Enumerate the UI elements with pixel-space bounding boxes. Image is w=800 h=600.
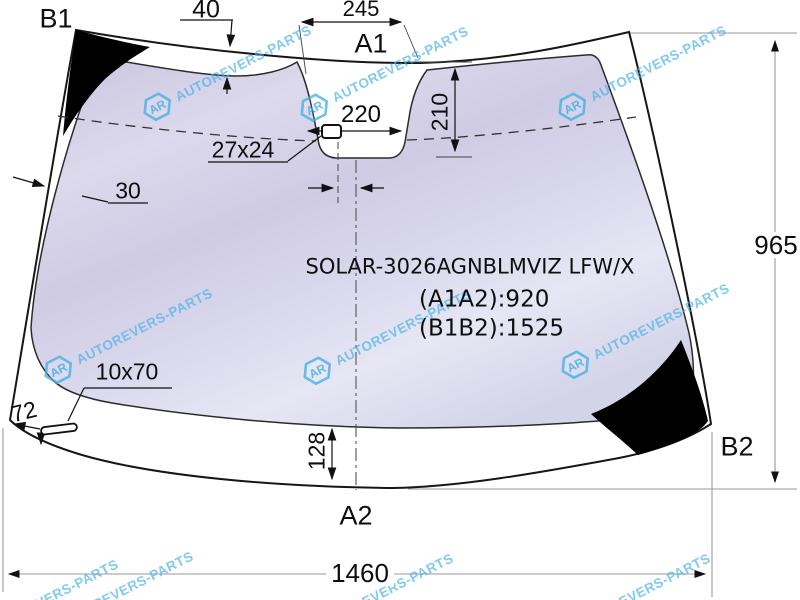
corner-label-b2: B2 <box>720 434 753 461</box>
part-number: SOLAR-3026AGNBLMVIZ LFW/X <box>306 257 635 278</box>
diagram-canvas <box>0 0 800 600</box>
dim-label-128: 128 <box>306 432 329 470</box>
dim-label-965: 965 <box>749 232 800 258</box>
dimension-b1b2: (B1B2):1525 <box>419 318 564 341</box>
dim-label-30: 30 <box>115 180 141 203</box>
dim-label-72: 72 <box>9 398 39 427</box>
corner-label-a2: A2 <box>339 503 372 530</box>
mirror-bracket <box>322 125 341 138</box>
dim-label-10x70: 10x70 <box>96 361 159 384</box>
windshield-diagram: AR AUTOREVERS-PARTS AR AUTOREVERS-PARTS … <box>0 0 800 600</box>
dim-label-40: 40 <box>192 0 220 23</box>
dim-label-245: 245 <box>343 0 380 20</box>
dim-label-27x24: 27x24 <box>212 139 275 162</box>
dim-label-220: 220 <box>341 103 381 127</box>
dimension-a1a2: (A1A2):920 <box>419 289 549 312</box>
dim-label-210: 210 <box>429 93 452 131</box>
corner-label-b1: B1 <box>39 6 72 33</box>
dim-label-1460: 1460 <box>326 560 394 586</box>
corner-label-a1: A1 <box>354 31 387 58</box>
